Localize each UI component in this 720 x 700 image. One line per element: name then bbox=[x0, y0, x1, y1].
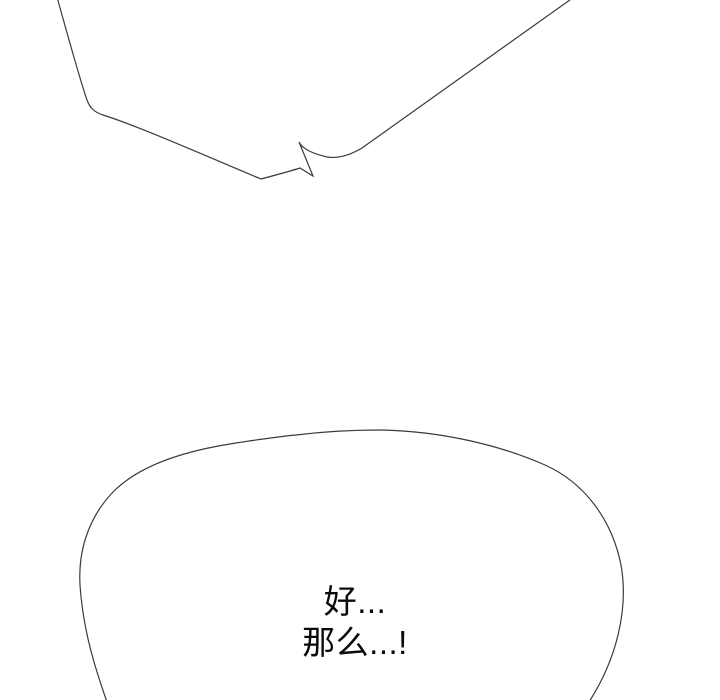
top-speech-bubble-outline bbox=[57, 0, 574, 179]
comic-panel: 好... 那么...! bbox=[0, 0, 720, 700]
dialogue-line-2: 那么...! bbox=[302, 622, 408, 663]
comic-page: { "canvas": { "width": 720, "height": 70… bbox=[0, 0, 720, 700]
bottom-bubble-dialogue: 好... 那么...! bbox=[302, 581, 408, 663]
dialogue-line-1: 好... bbox=[302, 581, 408, 622]
